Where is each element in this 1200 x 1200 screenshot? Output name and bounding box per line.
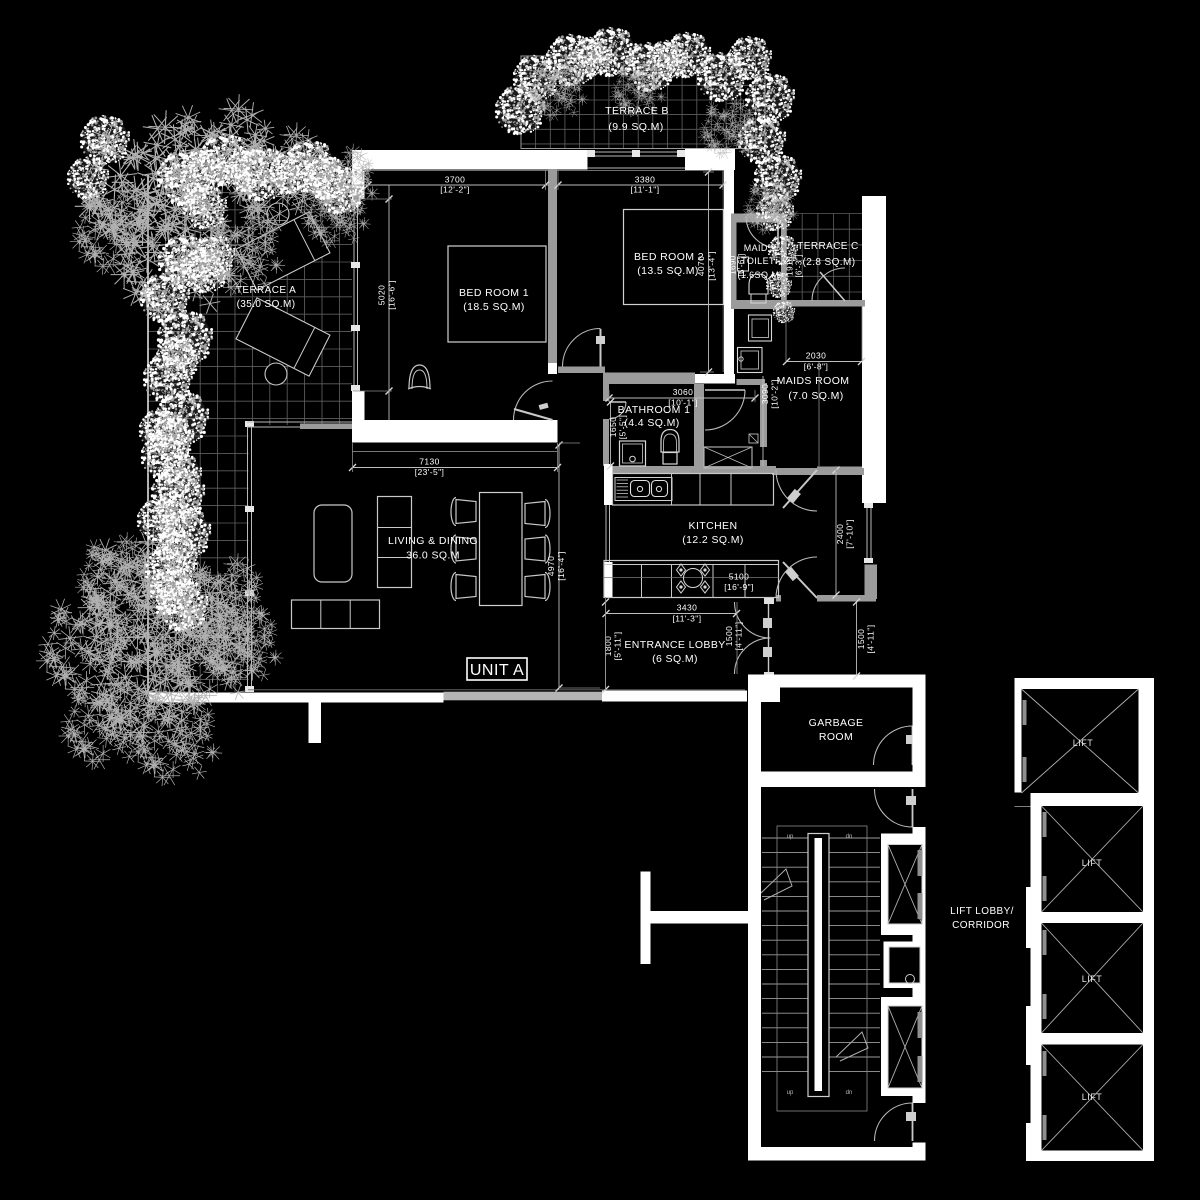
svg-text:[11'-3"]: [11'-3"]: [673, 614, 702, 624]
svg-text:GARBAGE: GARBAGE: [809, 717, 864, 729]
svg-text:[16'-6"]: [16'-6"]: [387, 280, 397, 310]
svg-text:(35.0 SQ.M): (35.0 SQ.M): [237, 299, 296, 310]
svg-text:MAIDS ROOM: MAIDS ROOM: [777, 375, 850, 387]
svg-text:TERRACE B: TERRACE B: [605, 105, 669, 117]
svg-text:1500: 1500: [724, 626, 734, 647]
svg-text:(12.2 SQ.M): (12.2 SQ.M): [682, 534, 744, 546]
svg-text:4070: 4070: [696, 256, 706, 277]
svg-text:dn: dn: [846, 1090, 853, 1096]
svg-text:(2.8 SQ.M): (2.8 SQ.M): [803, 257, 856, 268]
svg-text:[10'-2"]: [10'-2"]: [770, 379, 780, 409]
svg-text:3060: 3060: [673, 387, 694, 397]
svg-text:KITCHEN: KITCHEN: [689, 520, 738, 532]
svg-text:up: up: [787, 834, 794, 840]
svg-text:LIFT: LIFT: [1082, 1092, 1103, 1102]
svg-text:3090: 3090: [760, 384, 770, 405]
svg-text:2400: 2400: [835, 524, 845, 545]
svg-text:ENTRANCE LOBBY: ENTRANCE LOBBY: [624, 639, 725, 651]
svg-text:[10'-1"]: [10'-1"]: [668, 398, 698, 408]
svg-text:TOILET: TOILET: [741, 256, 775, 266]
svg-text:[5'-11"]: [5'-11"]: [613, 632, 623, 661]
svg-text:[12'-2"]: [12'-2"]: [440, 185, 470, 195]
svg-text:3380: 3380: [635, 175, 656, 185]
svg-text:2030: 2030: [806, 351, 827, 361]
svg-text:(18.5 SQ.M): (18.5 SQ.M): [463, 301, 525, 313]
svg-text:(9.9 SQ.M): (9.9 SQ.M): [608, 121, 663, 133]
svg-text:TERRACE C: TERRACE C: [797, 241, 858, 252]
svg-text:1500: 1500: [856, 629, 866, 650]
svg-text:[6'-8"]: [6'-8"]: [804, 362, 828, 372]
svg-text:LIFT: LIFT: [1082, 974, 1103, 984]
svg-text:[16'-9"]: [16'-9"]: [724, 582, 754, 592]
svg-text:7130: 7130: [419, 457, 440, 467]
svg-text:[13'-4"]: [13'-4"]: [707, 251, 717, 281]
svg-text:5020: 5020: [377, 285, 387, 306]
svg-text:[4'-11"]: [4'-11"]: [734, 622, 744, 651]
svg-text:LIVING & DINING: LIVING & DINING: [388, 535, 478, 547]
svg-text:LIFT: LIFT: [1073, 738, 1094, 748]
svg-text:1650: 1650: [608, 417, 618, 438]
svg-text:1800: 1800: [603, 636, 613, 657]
svg-text:[23'-5"]: [23'-5"]: [415, 467, 445, 477]
svg-text:1910: 1910: [786, 256, 795, 276]
svg-text:[4'-11"]: [4'-11"]: [866, 625, 876, 654]
svg-text:LIFT: LIFT: [1082, 858, 1103, 868]
svg-text:3700: 3700: [445, 175, 466, 185]
svg-text:MAID'S: MAID'S: [744, 243, 777, 253]
svg-text:[7'-10"]: [7'-10"]: [845, 519, 855, 549]
svg-text:dn: dn: [846, 834, 853, 840]
svg-text:CORRIDOR: CORRIDOR: [952, 920, 1010, 931]
svg-text:TERRACE A: TERRACE A: [236, 285, 296, 296]
svg-text:UNIT A: UNIT A: [470, 662, 524, 679]
svg-text:up: up: [787, 1090, 794, 1096]
svg-text:(4.4 SQ.M): (4.4 SQ.M): [624, 417, 679, 429]
svg-text:4970: 4970: [546, 556, 556, 577]
svg-text:[16'-4"]: [16'-4"]: [556, 551, 566, 581]
svg-text:[11'-1"]: [11'-1"]: [631, 185, 660, 195]
svg-text:5100: 5100: [729, 572, 750, 582]
svg-text:[5'-6"]: [5'-6"]: [737, 253, 746, 276]
svg-text:[6'-3"]: [6'-3"]: [795, 254, 804, 277]
svg-text:(7.0 SQ.M): (7.0 SQ.M): [788, 390, 843, 402]
svg-text:36.0 SQ.M: 36.0 SQ.M: [406, 550, 460, 562]
svg-text:(13.5 SQ.M): (13.5 SQ.M): [637, 265, 699, 277]
svg-text:3430: 3430: [677, 603, 698, 613]
svg-text:LIFT LOBBY/: LIFT LOBBY/: [950, 906, 1014, 917]
svg-text:[5'-5"]: [5'-5"]: [618, 415, 628, 439]
svg-text:BED ROOM 1: BED ROOM 1: [459, 287, 529, 299]
svg-text:ROOM: ROOM: [819, 731, 853, 743]
svg-text:BED ROOM 2: BED ROOM 2: [634, 251, 704, 263]
svg-text:(6 SQ.M): (6 SQ.M): [652, 653, 698, 665]
